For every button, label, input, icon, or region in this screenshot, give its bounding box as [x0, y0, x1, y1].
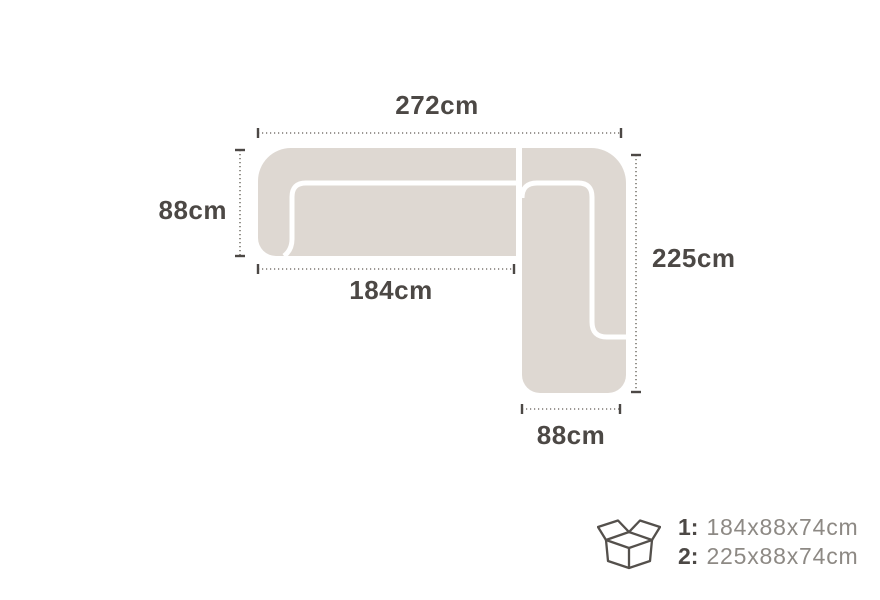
legend-item-1-index: 1: — [678, 514, 698, 540]
sofa-section-1 — [258, 148, 516, 256]
label-total-width: 272cm — [337, 91, 537, 119]
legend-item-2: 2:225x88x74cm — [678, 542, 858, 571]
open-box-icon — [597, 514, 661, 570]
label-left-depth: 88cm — [77, 196, 227, 224]
packaging-legend: 1:184x88x74cm 2:225x88x74cm — [597, 513, 858, 571]
legend-rows: 1:184x88x74cm 2:225x88x74cm — [678, 513, 858, 571]
label-right-length: 225cm — [652, 244, 735, 272]
sofa-dimension-diagram: 272cm 88cm 225cm 184cm 88cm 1:184x88x74c… — [0, 0, 880, 600]
legend-item-1: 1:184x88x74cm — [678, 513, 858, 542]
label-bottom-depth: 88cm — [471, 421, 671, 449]
legend-item-2-index: 2: — [678, 543, 698, 569]
legend-item-1-size: 184x88x74cm — [706, 514, 858, 540]
legend-item-2-size: 225x88x74cm — [706, 543, 858, 569]
label-section1-length: 184cm — [291, 276, 491, 304]
